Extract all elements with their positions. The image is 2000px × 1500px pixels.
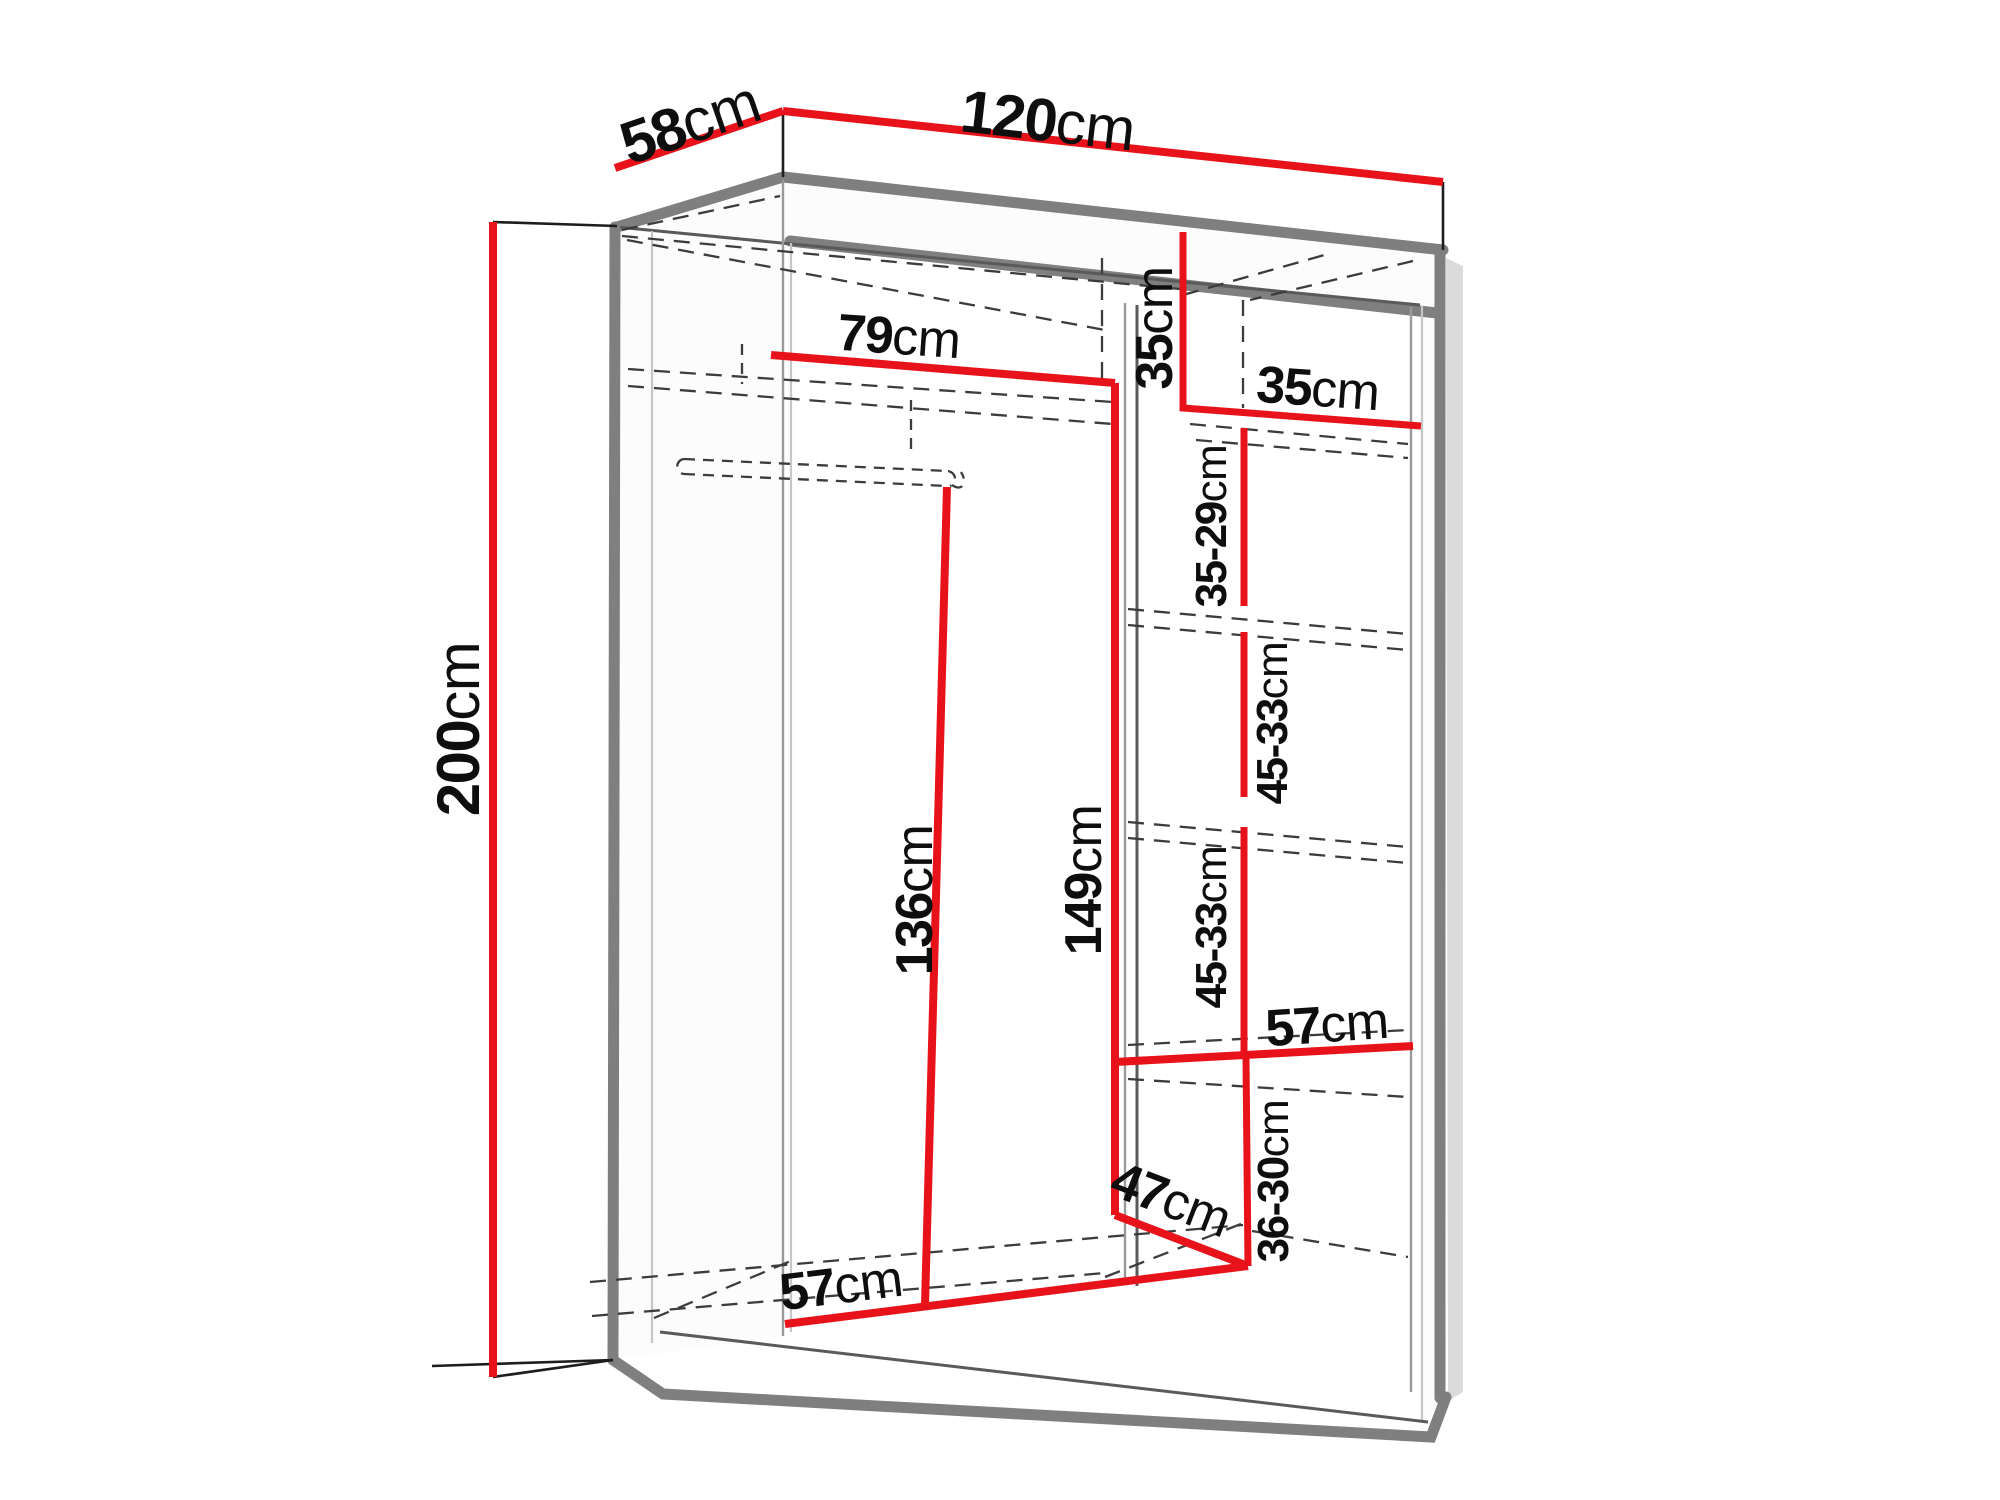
label-45-33-upper: 45-33cm	[1248, 642, 1297, 805]
label-height-200: 200cm	[425, 642, 492, 817]
rod-right-cap	[948, 471, 955, 486]
front-left-edge	[613, 227, 615, 1360]
label-shelf-79: 79cm	[836, 304, 963, 370]
shelf4-dashed-b	[1128, 1079, 1408, 1097]
shelf3-dashed-a	[1128, 822, 1408, 847]
label-35-29: 35-29cm	[1187, 445, 1236, 608]
shelf3-dashed-b	[1128, 838, 1408, 863]
right-drop-shadow	[1446, 258, 1463, 1401]
label-width-120: 120cm	[957, 77, 1138, 163]
bottom-edge	[613, 1360, 1446, 1437]
label-35-vertical: 35cm	[1126, 266, 1184, 389]
diagram-svg: 58cm 120cm 200cm 79cm 35cm 35cm 35-29cm …	[0, 0, 2000, 1500]
label-depth-58: 58cm	[612, 67, 769, 177]
label-45-33-lower: 45-33cm	[1187, 846, 1236, 1009]
label-149: 149cm	[1055, 805, 1113, 956]
left-side-panel	[613, 177, 783, 1360]
label-136: 136cm	[886, 825, 944, 976]
wardrobe-dimension-diagram: 58cm 120cm 200cm 79cm 35cm 35cm 35-29cm …	[0, 0, 2000, 1500]
label-35-horizontal: 35cm	[1255, 356, 1382, 422]
shelf1-dashed-a	[1190, 424, 1408, 444]
label-36-30: 36-30cm	[1249, 1100, 1298, 1263]
label-57-right: 57cm	[1264, 992, 1391, 1058]
shelf2-dashed-a	[1128, 609, 1408, 634]
height-connector-top	[493, 222, 617, 226]
plinth-top-edge	[660, 1332, 1428, 1422]
